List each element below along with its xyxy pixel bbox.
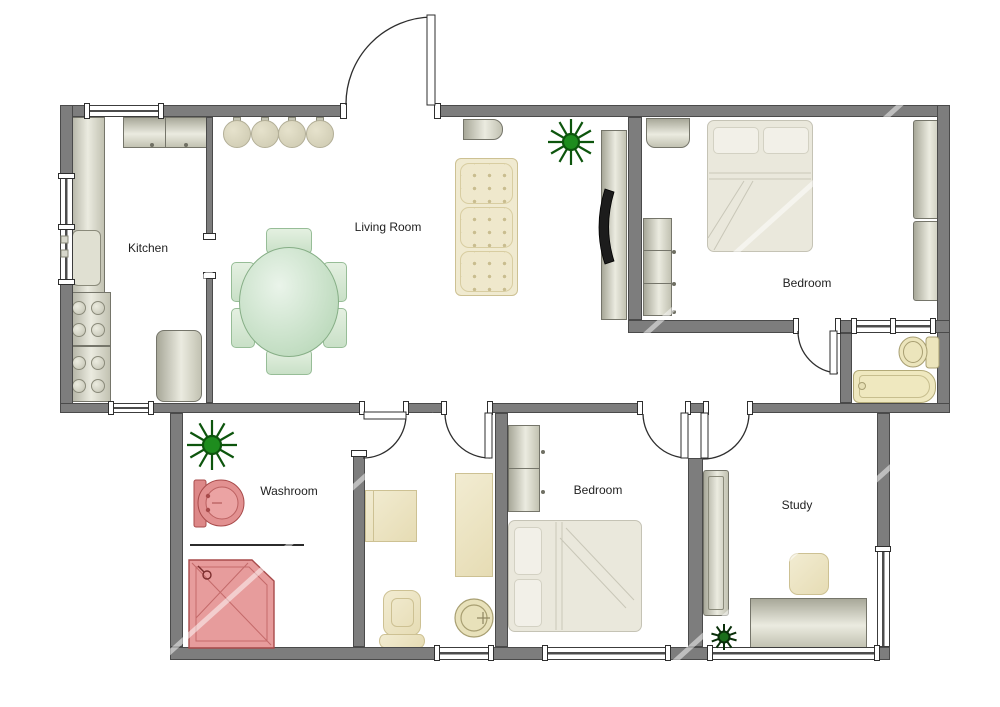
- window: [88, 105, 162, 117]
- door-post: [637, 401, 643, 415]
- kitchen-partition: [206, 117, 213, 238]
- window-post: [108, 401, 114, 415]
- wall-segment: [688, 458, 703, 647]
- washbasin-icon: [194, 480, 244, 527]
- wall-segment: [937, 105, 950, 413]
- entry-door-leaf: [427, 15, 435, 105]
- plant-icon-washroom: [187, 420, 237, 470]
- wall-segment: [405, 403, 445, 413]
- stove-burner: [91, 323, 105, 337]
- wall-segment: [877, 413, 890, 550]
- room-label-kitchen: Kitchen: [128, 241, 168, 255]
- oven-burner: [91, 379, 105, 393]
- door-post: [340, 103, 347, 119]
- sofa-cushion: [460, 207, 513, 248]
- stove-burner: [72, 323, 86, 337]
- wall-segment: [668, 647, 710, 660]
- window-post: [851, 318, 857, 334]
- wall-segment: [437, 105, 950, 117]
- room-label-washroom: Washroom: [260, 484, 318, 498]
- door-post: [487, 401, 493, 415]
- wall-segment: [934, 320, 950, 333]
- wall-segment: [628, 320, 798, 333]
- room-label-bedroom-bottom: Bedroom: [574, 483, 623, 497]
- window-post: [875, 546, 891, 552]
- window-post: [148, 401, 154, 415]
- wall-segment: [170, 647, 437, 660]
- window-post: [488, 645, 494, 661]
- bedroom-top-door-arc: [798, 331, 838, 373]
- ceiling-light-icon: [306, 120, 334, 148]
- washroom-divider-line: [190, 544, 304, 546]
- door-post: [703, 401, 709, 415]
- utility-chair-back: [379, 634, 425, 648]
- wall-segment: [160, 105, 345, 117]
- bedroom-bottom-door-arc: [643, 414, 688, 458]
- door-post: [685, 401, 691, 415]
- window: [545, 647, 668, 660]
- wall-segment: [628, 117, 642, 320]
- wall-segment: [60, 281, 73, 413]
- window-post: [890, 318, 896, 334]
- kitchen-sink: [72, 230, 101, 286]
- wall-segment: [490, 403, 643, 413]
- wall-segment: [60, 403, 112, 413]
- wall-segment: [353, 455, 365, 647]
- utility-counter: [455, 473, 493, 577]
- room-label-study: Study: [782, 498, 813, 512]
- washroom-door-arc: [363, 416, 406, 458]
- nightstand: [646, 118, 690, 148]
- partition-cap: [203, 233, 216, 240]
- double-bed-top: [707, 120, 813, 252]
- window-post: [58, 173, 75, 179]
- pillow: [514, 579, 542, 627]
- window-post: [158, 103, 164, 119]
- tv-console: [601, 130, 627, 320]
- utility-cabinet: [365, 490, 417, 542]
- bookshelf: [703, 470, 729, 616]
- door-post: [441, 401, 447, 415]
- window-post: [58, 224, 75, 230]
- window-post: [542, 645, 548, 661]
- door-post: [434, 103, 441, 119]
- window: [60, 177, 73, 283]
- wall-segment: [150, 403, 365, 413]
- window-post: [874, 645, 880, 661]
- stove-burner: [91, 301, 105, 315]
- bedroom-top-door-leaf: [830, 331, 837, 374]
- door-post: [359, 401, 365, 415]
- kitchen-partition: [206, 278, 213, 403]
- wall-segment: [490, 647, 545, 660]
- pillow: [763, 127, 809, 154]
- bedroom-cabinet: [508, 425, 540, 512]
- pillow: [713, 127, 759, 154]
- bathtub: [853, 370, 936, 403]
- double-bed-bottom: [508, 520, 642, 632]
- door-post: [793, 318, 799, 334]
- study-door-arc: [703, 414, 749, 459]
- door-post: [835, 318, 841, 334]
- floor-plan: Kitchen Living Room Bedroom Washroom Bed…: [0, 0, 1000, 707]
- wall-segment: [749, 403, 950, 413]
- upper-cabinet: [123, 117, 207, 148]
- refrigerator: [156, 330, 202, 402]
- shower-icon: [189, 560, 274, 648]
- pillow: [514, 527, 542, 575]
- window-post: [84, 103, 90, 119]
- study-chair: [789, 553, 829, 595]
- wall-heater: [463, 119, 503, 140]
- room-label-living-room: Living Room: [355, 220, 422, 234]
- window-post: [434, 645, 440, 661]
- entry-door-arc: [346, 17, 432, 105]
- toilet-icon: [899, 337, 939, 368]
- sofa: [455, 158, 518, 296]
- room-label-bedroom-top: Bedroom: [783, 276, 832, 290]
- partition-cap: [351, 450, 367, 457]
- window-post: [58, 279, 75, 285]
- oven-unit: [67, 346, 111, 402]
- utility-chair-seat: [383, 590, 421, 636]
- desk: [750, 598, 867, 648]
- bedroom-bottom-door-leaf: [681, 413, 688, 458]
- window-post: [930, 318, 936, 334]
- door-post: [747, 401, 753, 415]
- ceiling-light-icon: [251, 120, 279, 148]
- window: [437, 647, 490, 660]
- dresser: [643, 218, 672, 316]
- window-post: [665, 645, 671, 661]
- window: [877, 550, 890, 647]
- wall-segment: [60, 105, 73, 179]
- oven-burner: [91, 356, 105, 370]
- window-post: [707, 645, 713, 661]
- plant-icon-living: [548, 119, 594, 165]
- study-door-leaf: [701, 413, 708, 458]
- ceiling-light-icon: [278, 120, 306, 148]
- window: [112, 403, 152, 413]
- washroom-door-leaf: [364, 412, 406, 419]
- window: [710, 647, 877, 660]
- sofa-cushion: [460, 251, 513, 292]
- stove: [67, 292, 111, 346]
- stove-burner: [72, 301, 86, 315]
- wall-segment: [495, 413, 508, 647]
- sofa-cushion: [460, 163, 513, 204]
- door-post: [403, 401, 409, 415]
- dining-table: [239, 247, 339, 357]
- oven-burner: [72, 356, 86, 370]
- wall-segment: [170, 413, 183, 647]
- cabinet-knobs: [150, 143, 676, 494]
- oven-burner: [72, 379, 86, 393]
- bathroom-wall: [840, 333, 852, 403]
- utility-door-arc: [445, 414, 490, 458]
- ceiling-light-icon: [223, 120, 251, 148]
- partition-cap: [203, 272, 216, 279]
- round-basin-icon: [455, 599, 493, 637]
- utility-door-leaf: [485, 413, 492, 458]
